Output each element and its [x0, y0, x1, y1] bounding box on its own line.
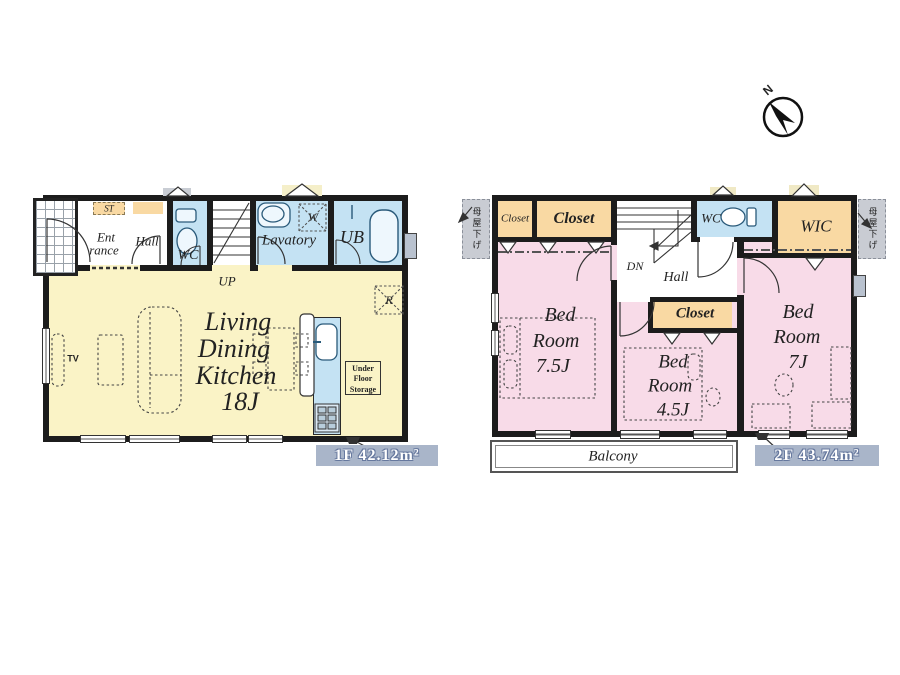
balcony-label: Balcony: [588, 450, 637, 465]
wall: [250, 201, 256, 265]
storage-st-label: ST: [104, 205, 114, 214]
bedroom3-label: Room: [774, 327, 821, 347]
window: [693, 430, 727, 439]
wall: [498, 237, 617, 242]
under-floor-storage-label: Floor: [346, 374, 380, 384]
floorplan-page: N Under Floor Storage: [0, 0, 900, 675]
hall-label-2f: Hall: [664, 271, 689, 285]
wc-label-2f: WC: [701, 212, 721, 225]
wall: [650, 297, 737, 302]
wall: [532, 201, 537, 237]
bath-ub-label: UB: [340, 228, 364, 246]
fridge-label: R: [385, 294, 392, 306]
tv-label: TV: [67, 355, 79, 364]
under-floor-storage-label: Storage: [346, 385, 380, 395]
wall: [167, 201, 173, 265]
wall: [737, 295, 744, 431]
wall: [648, 302, 653, 328]
wall: [772, 253, 851, 258]
lavatory-label: Lavatory: [262, 234, 316, 249]
wall: [737, 237, 744, 258]
eaves-label-right: 母屋下げ: [868, 207, 877, 251]
bedroom1-label: Bed: [544, 305, 575, 325]
window: [212, 435, 247, 443]
eaves-line: [744, 249, 851, 251]
wall: [691, 237, 700, 242]
eaves-line: [498, 251, 611, 253]
ldk-label: Living: [205, 309, 271, 335]
wall: [611, 201, 617, 245]
wall: [611, 280, 617, 431]
closet-a-label: Closet: [501, 214, 529, 225]
stairs-1f: [213, 201, 250, 265]
exterior-vent-tab: [853, 275, 866, 297]
bedroom1-label: Room: [533, 331, 580, 351]
window: [620, 430, 660, 439]
wall: [691, 201, 697, 242]
stairs-up-label: UP: [218, 275, 235, 288]
wall: [328, 201, 334, 265]
floor2-area-badge: 2F 43.74m²: [755, 445, 879, 466]
bedroom2-label: 4.5J: [657, 401, 689, 420]
wall: [140, 265, 212, 271]
ldk-label: Dining: [198, 336, 270, 362]
wall: [292, 265, 402, 271]
wall: [772, 201, 778, 253]
bedroom2-label: Bed: [658, 353, 688, 372]
bedroom3-label: Bed: [782, 302, 813, 322]
ldk-label: Kitchen: [196, 363, 277, 389]
stairs-dn-label: DN: [627, 260, 644, 272]
washer-label: W: [308, 211, 318, 223]
wall: [207, 201, 213, 265]
compass-north-label: N: [761, 83, 775, 98]
window: [42, 328, 50, 384]
under-floor-storage-label: Under: [346, 364, 380, 374]
window: [80, 435, 126, 443]
wall: [744, 253, 772, 258]
bedroom2-label: Room: [648, 377, 692, 396]
window: [806, 430, 848, 439]
eaves-strip-left: 母屋下げ: [462, 199, 490, 259]
wic-label: WIC: [800, 218, 831, 235]
window: [248, 435, 283, 443]
entrance-label: rance: [89, 244, 119, 257]
ldk-label: 18J: [221, 389, 259, 415]
window: [535, 430, 571, 439]
closet-b-label: Closet: [554, 211, 595, 227]
bedroom3-label: 7J: [789, 352, 808, 372]
shelf-box: [133, 202, 163, 214]
window: [129, 435, 180, 443]
hall-2f-corridor: [697, 237, 737, 253]
under-floor-storage-box: Under Floor Storage: [345, 361, 381, 395]
window: [491, 293, 499, 323]
window: [758, 430, 790, 439]
entrance-porch-tiles: [33, 198, 78, 276]
eaves-label-left: 母屋下げ: [472, 207, 481, 251]
hall-label-1f: Hall: [135, 235, 158, 248]
exterior-vent-tab: [404, 233, 417, 259]
window: [491, 330, 499, 356]
wc-label-1f: WC: [178, 249, 199, 263]
wall: [648, 328, 737, 333]
kitchen-unit: [313, 317, 341, 435]
floor1-area-badge: 1F 42.12m²: [316, 445, 438, 466]
closet-c-label: Closet: [676, 307, 714, 322]
bedroom1-label: 7.5J: [536, 356, 570, 376]
wall: [250, 265, 258, 271]
eaves-strip-right: 母屋下げ: [858, 199, 886, 259]
